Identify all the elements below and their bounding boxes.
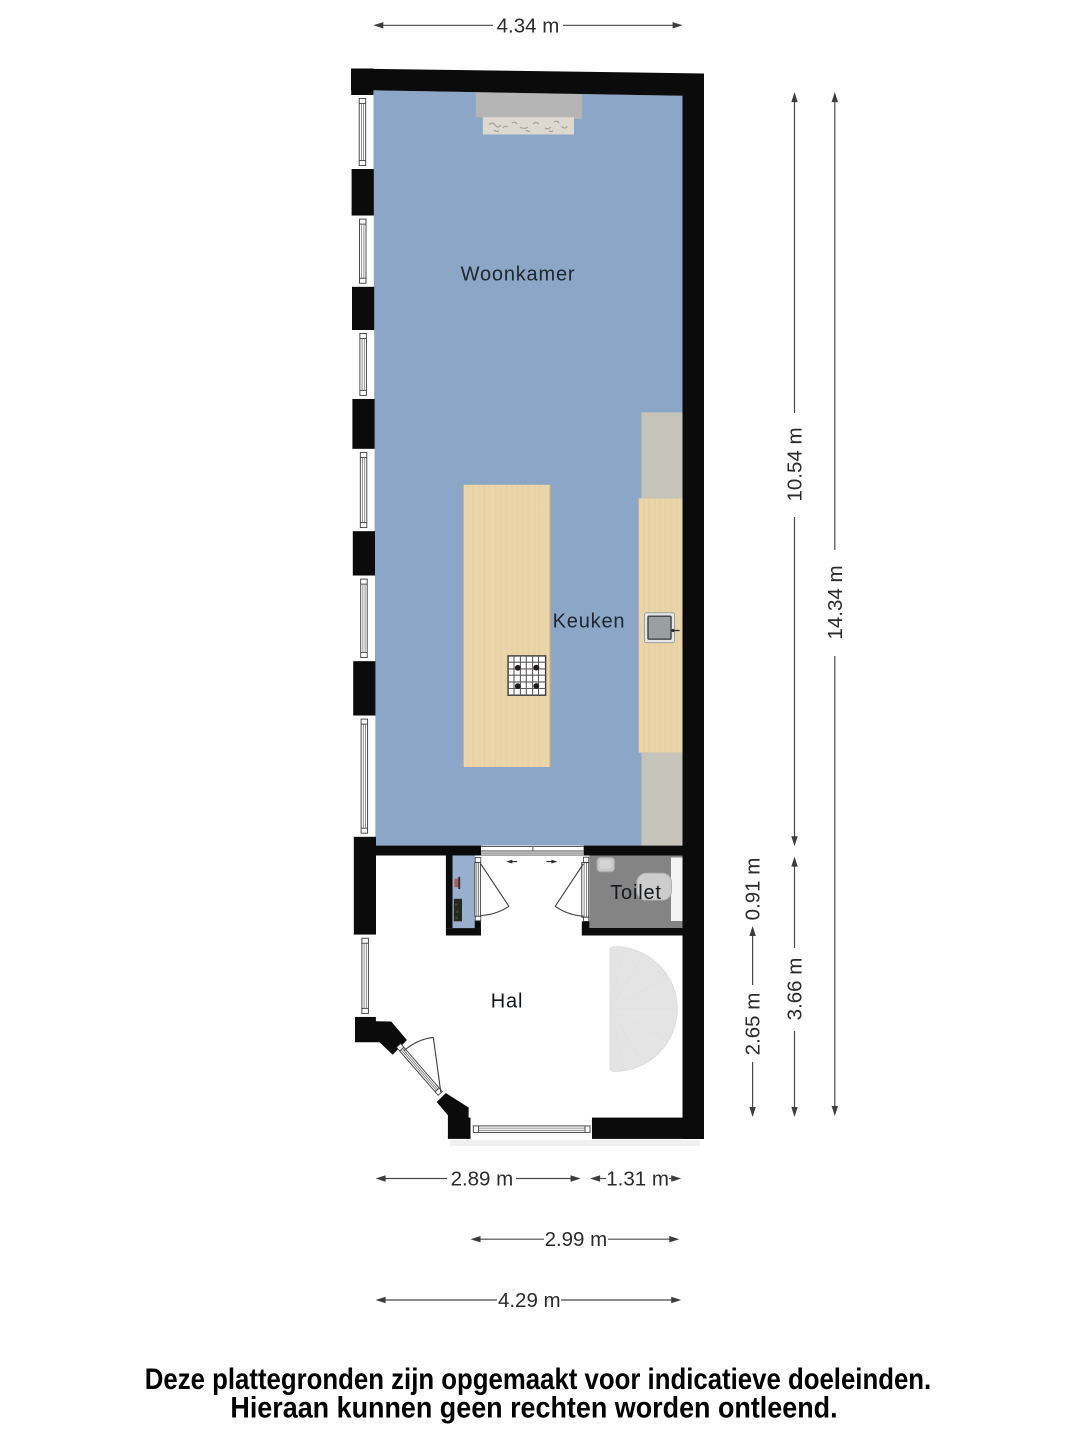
svg-text:Hal: Hal — [491, 991, 523, 1013]
svg-text:10.54 m: 10.54 m — [784, 427, 807, 501]
svg-text:Keuken: Keuken — [553, 611, 626, 633]
svg-text:14.34 m: 14.34 m — [824, 565, 847, 639]
svg-text:3.66 m: 3.66 m — [784, 958, 807, 1021]
svg-text:0.91 m: 0.91 m — [742, 858, 765, 921]
svg-text:2.65 m: 2.65 m — [742, 993, 765, 1056]
svg-text:Toilet: Toilet — [610, 882, 662, 904]
svg-text:4.29 m: 4.29 m — [498, 1289, 561, 1312]
svg-text:2.89 m: 2.89 m — [451, 1168, 514, 1191]
svg-text:Hieraan kunnen geen rechten wo: Hieraan kunnen geen rechten worden ontle… — [230, 1391, 837, 1424]
svg-text:1.31 m: 1.31 m — [606, 1168, 669, 1191]
svg-text:2.99 m: 2.99 m — [545, 1228, 608, 1251]
svg-text:Woonkamer: Woonkamer — [461, 264, 576, 286]
svg-text:4.34 m: 4.34 m — [497, 14, 560, 37]
